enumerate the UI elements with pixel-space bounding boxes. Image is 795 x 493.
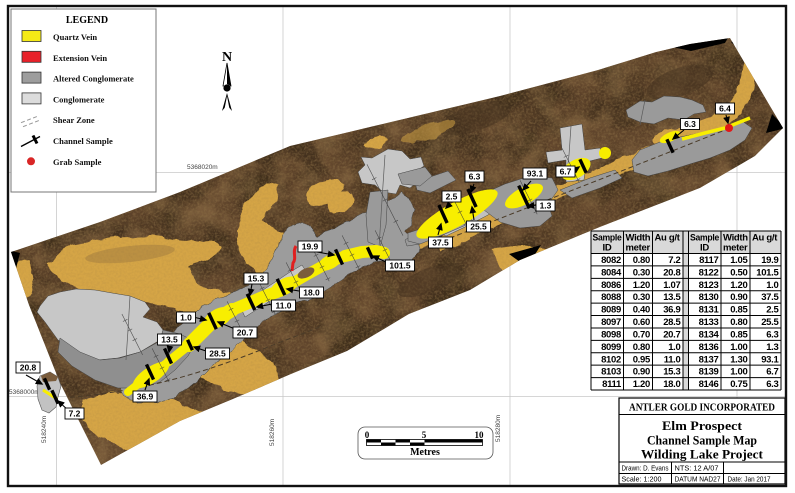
- svg-text:1.20: 1.20: [633, 280, 650, 291]
- svg-text:8123: 8123: [699, 280, 719, 291]
- svg-text:10: 10: [475, 430, 485, 440]
- svg-text:25.5: 25.5: [761, 317, 779, 328]
- svg-text:1.00: 1.00: [730, 342, 747, 353]
- svg-text:8082: 8082: [601, 255, 621, 266]
- svg-text:0.40: 0.40: [633, 305, 650, 316]
- svg-text:8137: 8137: [699, 354, 719, 365]
- svg-text:2.5: 2.5: [766, 305, 779, 316]
- svg-text:8098: 8098: [601, 329, 621, 340]
- svg-text:6.3: 6.3: [469, 172, 481, 182]
- svg-text:19.9: 19.9: [302, 242, 319, 252]
- svg-text:Au g/t: Au g/t: [655, 233, 681, 244]
- svg-text:101.5: 101.5: [756, 267, 779, 278]
- svg-text:Date: Jan 2017: Date: Jan 2017: [728, 477, 771, 484]
- svg-text:0: 0: [365, 430, 370, 440]
- svg-text:25.5: 25.5: [470, 222, 487, 232]
- svg-text:1.30: 1.30: [730, 354, 747, 365]
- svg-text:Channel Sample: Channel Sample: [53, 136, 113, 146]
- svg-text:1.0: 1.0: [180, 313, 192, 323]
- svg-text:28.5: 28.5: [663, 317, 681, 328]
- svg-text:Conglomerate: Conglomerate: [53, 94, 105, 104]
- svg-text:18.0: 18.0: [303, 288, 320, 298]
- svg-text:15.3: 15.3: [663, 367, 680, 378]
- svg-text:5368000m: 5368000m: [9, 389, 40, 396]
- svg-text:0.80: 0.80: [730, 317, 747, 328]
- svg-text:Scale: 1:200: Scale: 1:200: [622, 477, 662, 484]
- svg-text:7.2: 7.2: [69, 409, 81, 419]
- svg-text:Quartz Vein: Quartz Vein: [53, 32, 97, 42]
- svg-text:8130: 8130: [699, 292, 719, 303]
- svg-text:Elm Prospect: Elm Prospect: [662, 419, 743, 433]
- svg-text:518260m: 518260m: [269, 419, 276, 446]
- svg-text:20.7: 20.7: [237, 328, 254, 338]
- svg-text:0.85: 0.85: [730, 305, 748, 316]
- svg-text:NTS: 12 A/07: NTS: 12 A/07: [675, 466, 719, 473]
- svg-text:6.3: 6.3: [766, 329, 778, 340]
- svg-text:8117: 8117: [699, 255, 718, 266]
- svg-text:0.95: 0.95: [633, 354, 651, 365]
- svg-text:20.8: 20.8: [663, 267, 680, 278]
- svg-text:37.5: 37.5: [761, 292, 779, 303]
- svg-text:1.07: 1.07: [663, 280, 680, 291]
- svg-text:0.90: 0.90: [730, 292, 747, 303]
- svg-text:1.0: 1.0: [766, 280, 778, 291]
- svg-text:Channel Sample Map: Channel Sample Map: [647, 434, 757, 448]
- svg-text:0.70: 0.70: [633, 329, 650, 340]
- svg-text:8089: 8089: [601, 305, 621, 316]
- svg-text:ID: ID: [603, 243, 612, 254]
- svg-text:8146: 8146: [699, 379, 719, 390]
- svg-text:15.3: 15.3: [248, 274, 265, 284]
- svg-text:Drawn: D. Evans: Drawn: D. Evans: [622, 466, 669, 473]
- svg-text:0.60: 0.60: [633, 317, 650, 328]
- svg-text:8134: 8134: [699, 329, 720, 340]
- svg-text:meter: meter: [723, 243, 748, 254]
- svg-text:8103: 8103: [601, 367, 621, 378]
- svg-text:20.7: 20.7: [663, 329, 680, 340]
- svg-text:1.00: 1.00: [730, 367, 747, 378]
- svg-text:101.5: 101.5: [389, 261, 411, 271]
- svg-text:1.3: 1.3: [540, 201, 552, 211]
- svg-text:N: N: [222, 50, 232, 65]
- svg-text:0.90: 0.90: [633, 367, 650, 378]
- svg-text:18.0: 18.0: [663, 379, 680, 390]
- svg-text:8097: 8097: [601, 317, 621, 328]
- svg-text:5: 5: [422, 430, 427, 440]
- svg-text:0.50: 0.50: [730, 267, 747, 278]
- svg-text:36.9: 36.9: [137, 392, 154, 402]
- svg-text:6.3: 6.3: [766, 379, 778, 390]
- svg-text:93.1: 93.1: [527, 169, 544, 179]
- svg-text:Extension Vein: Extension Vein: [53, 53, 107, 63]
- svg-text:1.20: 1.20: [730, 280, 747, 291]
- svg-text:7.2: 7.2: [668, 255, 680, 266]
- svg-text:6.4: 6.4: [719, 104, 731, 114]
- svg-text:11.0: 11.0: [275, 301, 291, 311]
- svg-text:0.75: 0.75: [730, 379, 748, 390]
- svg-text:8102: 8102: [601, 354, 621, 365]
- svg-text:1.3: 1.3: [766, 342, 778, 353]
- svg-text:6.7: 6.7: [766, 367, 778, 378]
- svg-text:6.7: 6.7: [560, 167, 572, 177]
- svg-text:8122: 8122: [699, 267, 719, 278]
- svg-text:518240m: 518240m: [41, 416, 48, 443]
- svg-text:8086: 8086: [601, 280, 621, 291]
- svg-text:0.80: 0.80: [633, 255, 650, 266]
- svg-text:8133: 8133: [699, 317, 719, 328]
- svg-text:13.5: 13.5: [663, 292, 681, 303]
- svg-text:2.5: 2.5: [446, 192, 458, 202]
- svg-text:Wilding Lake Project: Wilding Lake Project: [641, 448, 764, 462]
- svg-text:1.0: 1.0: [668, 342, 680, 353]
- svg-text:0.30: 0.30: [633, 267, 650, 278]
- svg-text:93.1: 93.1: [761, 354, 779, 365]
- svg-text:LEGEND: LEGEND: [66, 15, 108, 26]
- svg-text:37.5: 37.5: [432, 238, 449, 248]
- svg-text:0.30: 0.30: [633, 292, 650, 303]
- svg-text:19.9: 19.9: [761, 255, 778, 266]
- svg-text:meter: meter: [626, 243, 651, 254]
- svg-text:518280m: 518280m: [495, 415, 502, 442]
- svg-text:Metres: Metres: [410, 447, 440, 458]
- svg-text:5368020m: 5368020m: [187, 164, 218, 171]
- svg-text:11.0: 11.0: [664, 354, 681, 365]
- svg-text:ID: ID: [700, 243, 709, 254]
- svg-text:1.05: 1.05: [730, 255, 748, 266]
- svg-text:Shear Zone: Shear Zone: [53, 115, 95, 125]
- svg-text:8088: 8088: [601, 292, 621, 303]
- svg-text:6.3: 6.3: [684, 119, 696, 129]
- svg-text:8131: 8131: [699, 305, 720, 316]
- svg-text:13.5: 13.5: [161, 335, 178, 345]
- svg-text:1.20: 1.20: [633, 379, 650, 390]
- svg-text:Grab Sample: Grab Sample: [53, 157, 102, 167]
- svg-text:0.85: 0.85: [730, 329, 748, 340]
- svg-text:20.8: 20.8: [20, 363, 37, 373]
- svg-text:DATUM NAD27: DATUM NAD27: [675, 477, 721, 484]
- svg-text:8136: 8136: [699, 342, 719, 353]
- svg-text:28.5: 28.5: [209, 349, 226, 359]
- svg-text:8111: 8111: [602, 379, 622, 390]
- svg-text:0.80: 0.80: [633, 342, 650, 353]
- svg-text:8099: 8099: [601, 342, 621, 353]
- svg-text:Au g/t: Au g/t: [752, 233, 778, 244]
- svg-text:Altered Conglomerate: Altered Conglomerate: [53, 74, 134, 84]
- svg-text:8139: 8139: [699, 367, 719, 378]
- svg-text:36.9: 36.9: [663, 305, 680, 316]
- svg-text:ANTLER GOLD INCORPORATED: ANTLER GOLD INCORPORATED: [629, 403, 775, 414]
- svg-text:8084: 8084: [601, 267, 622, 278]
